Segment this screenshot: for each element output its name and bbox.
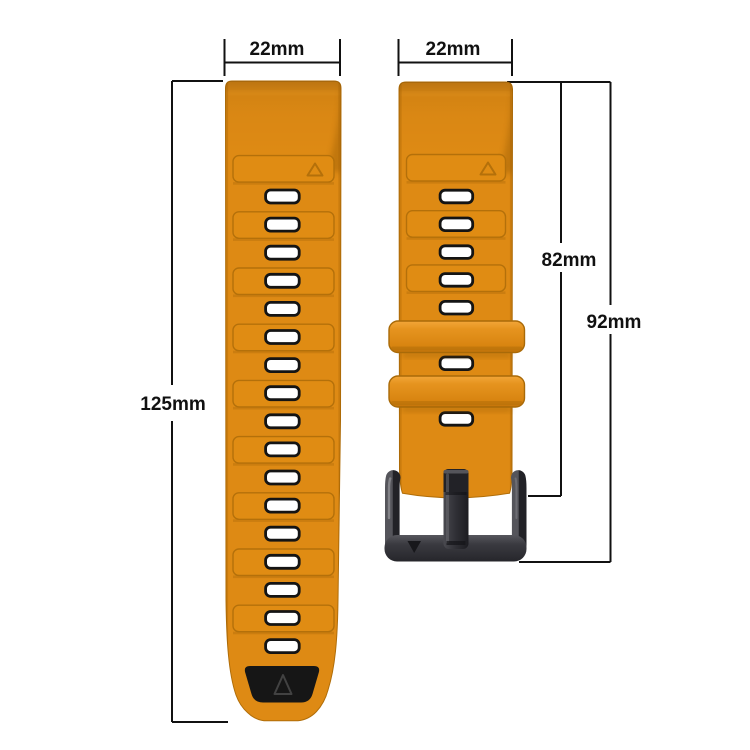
svg-text:22mm: 22mm — [426, 39, 481, 60]
svg-text:22mm: 22mm — [250, 39, 305, 60]
svg-text:92mm: 92mm — [587, 312, 642, 333]
svg-text:82mm: 82mm — [542, 250, 597, 271]
svg-text:125mm: 125mm — [140, 394, 206, 415]
